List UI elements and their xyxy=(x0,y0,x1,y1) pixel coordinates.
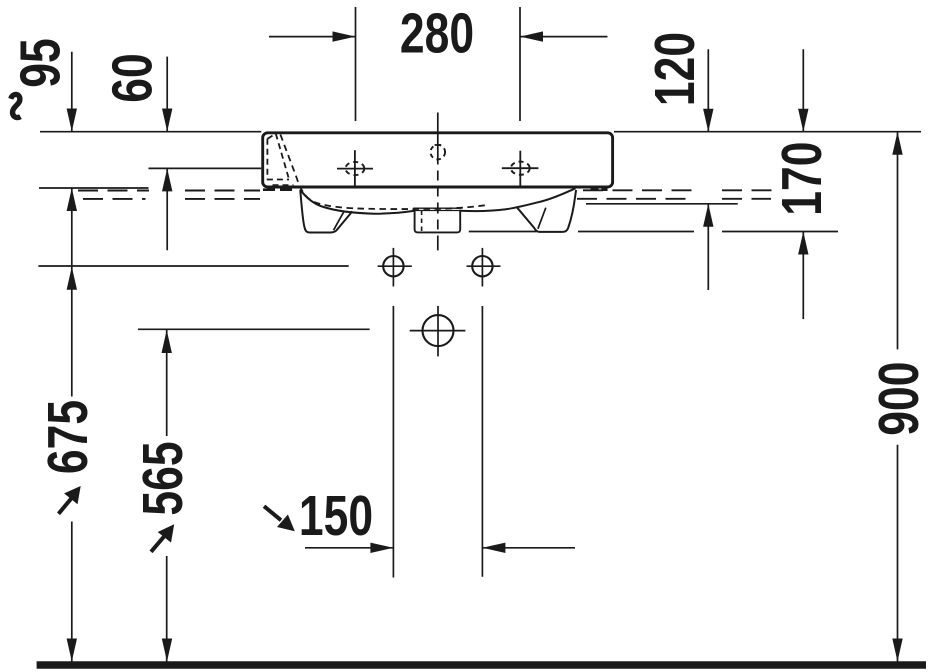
svg-text:900: 900 xyxy=(867,362,930,436)
svg-text:60: 60 xyxy=(100,53,164,102)
svg-text:170: 170 xyxy=(770,142,834,216)
svg-text:120: 120 xyxy=(643,32,707,106)
svg-text:280: 280 xyxy=(400,1,474,65)
svg-text:675: 675 xyxy=(36,400,100,474)
svg-text:150: 150 xyxy=(299,484,373,548)
svg-text:565: 565 xyxy=(131,441,195,515)
svg-text:95: 95 xyxy=(8,38,72,87)
